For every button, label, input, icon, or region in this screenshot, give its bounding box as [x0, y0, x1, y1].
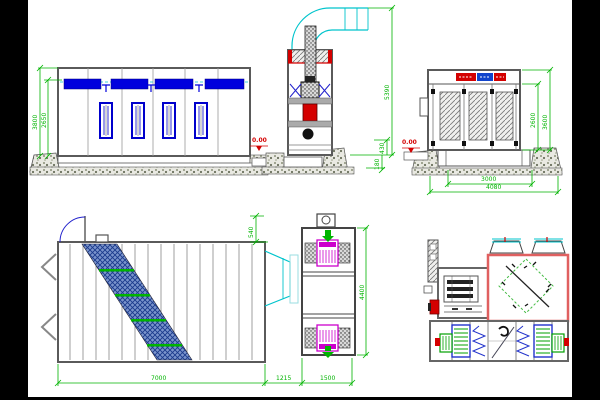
roof-vent [96, 235, 108, 242]
red-trim-left [288, 50, 292, 63]
ground-strip [262, 167, 354, 174]
door-swing-arc [60, 217, 85, 242]
drawing-canvas [0, 0, 600, 400]
view-side-exhaust-elevation [252, 5, 395, 174]
cad-sheet: 3800 2650 0.00 5390 430 180 0.00 3000 40… [0, 0, 600, 400]
view-front-elevation [30, 65, 268, 175]
view-end-elevation [402, 67, 562, 195]
control-box [420, 98, 428, 116]
blower-cap [428, 303, 431, 311]
roof-outlet-port [322, 216, 330, 224]
intake-hood-left [490, 237, 523, 253]
dim-door-offset [250, 213, 268, 245]
ground-strip [412, 168, 562, 175]
red-trim-right [328, 50, 332, 63]
dim-fan-unit-depth [357, 225, 369, 358]
ground-strip [30, 167, 268, 175]
exhaust-duct-elbow [292, 8, 368, 50]
access-port [303, 129, 314, 140]
level-marker-front [250, 146, 268, 151]
burner-box-red [303, 104, 317, 121]
chimney-port-1 [430, 244, 436, 250]
base-plinth [58, 156, 250, 163]
burner-blower-red [430, 300, 439, 314]
motor-cap [305, 76, 315, 82]
transition-duct [265, 251, 298, 306]
dim-end-heights [522, 67, 553, 153]
view-plan-machine-room [424, 237, 569, 361]
brand-logo [456, 73, 506, 81]
intake-hood-right [532, 237, 565, 253]
frame-band-2 [288, 121, 332, 127]
chimney-base [424, 286, 432, 293]
view-plan-fan-unit [302, 214, 369, 358]
base-plinth [438, 150, 530, 166]
ground-left [266, 153, 284, 169]
pit-channel-left [404, 152, 428, 160]
fan-motor [301, 82, 319, 98]
open-door-marks [42, 254, 56, 340]
pit-box [284, 157, 322, 167]
chimney-port-2 [430, 254, 436, 260]
frame-band-1 [288, 98, 332, 104]
door-panels [440, 92, 513, 140]
